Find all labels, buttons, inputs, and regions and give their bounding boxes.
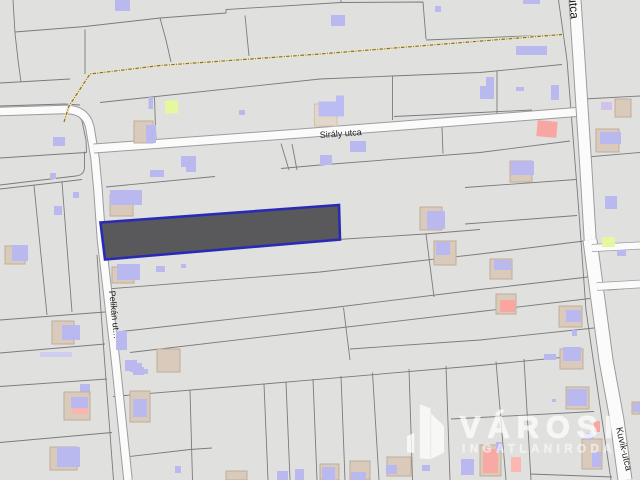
svg-text:VÁROSI: VÁROSI <box>460 410 620 445</box>
svg-text:INGATLANIRODA: INGATLANIRODA <box>462 444 616 456</box>
